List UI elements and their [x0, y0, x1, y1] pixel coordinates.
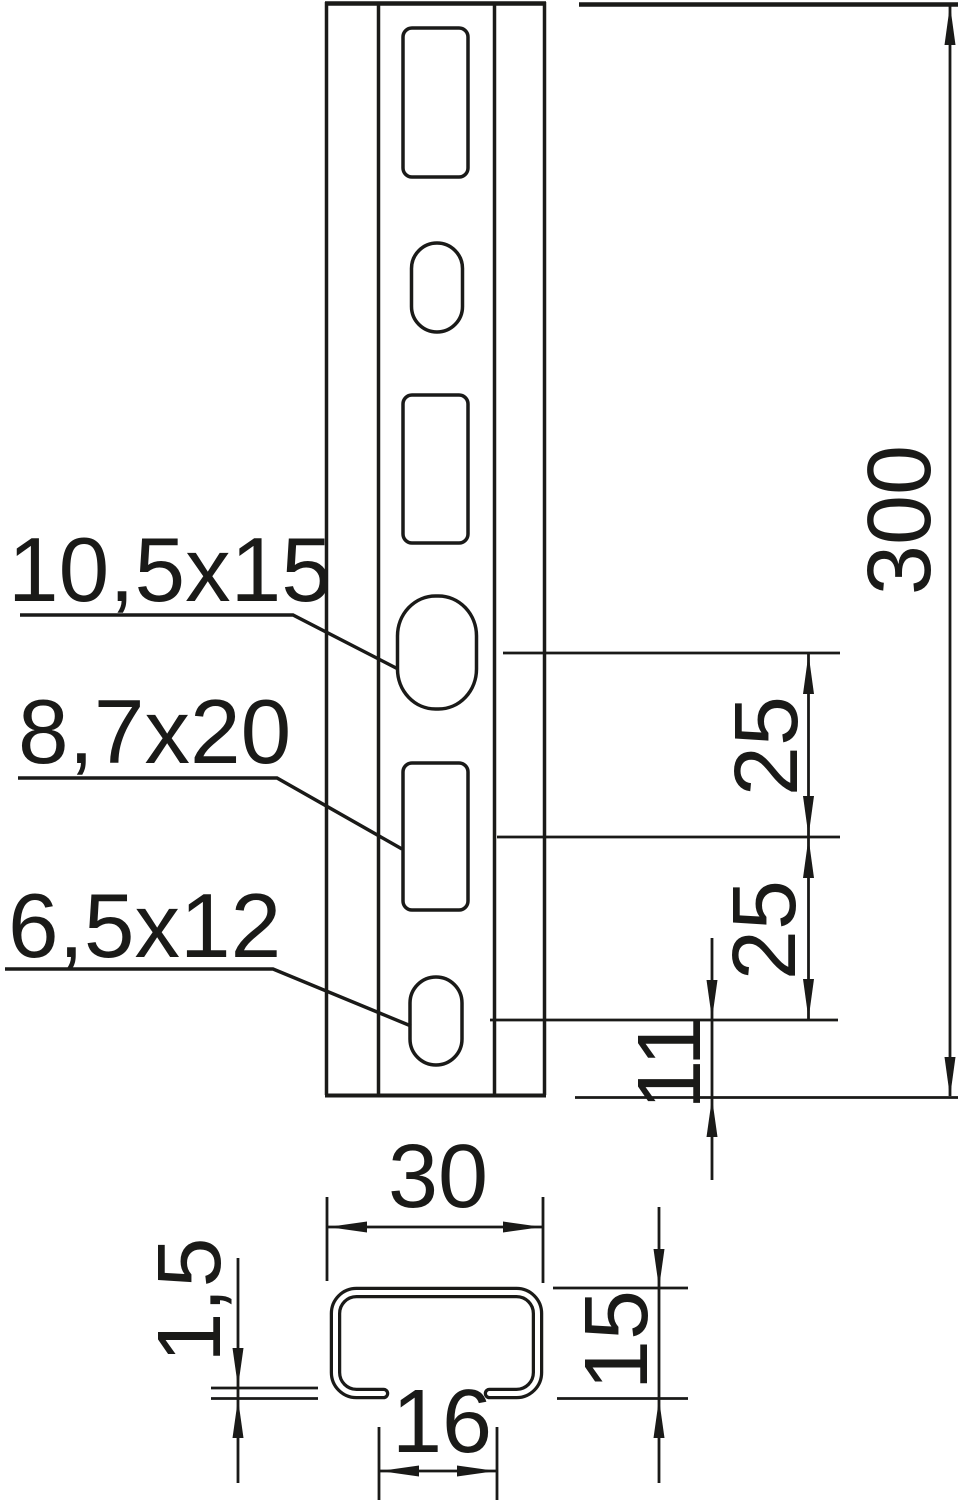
- dimension-profile-width: 30: [327, 1127, 543, 1283]
- arrow-right-icon: [503, 1222, 542, 1233]
- dimension-profile-height: 15: [553, 1207, 688, 1483]
- dim-value-30: 30: [388, 1127, 488, 1227]
- dimension-end-offset: 11: [620, 938, 720, 1180]
- arrow-up-icon: [233, 1399, 244, 1438]
- dim-value-25-lower: 25: [715, 880, 815, 980]
- technical-drawing-page: 10,5x15 8,7x20 6,5x12 300 25 25: [0, 0, 980, 1500]
- hole-small-oval: [410, 977, 462, 1065]
- dimension-upper-spacing: 25: [717, 654, 817, 836]
- rail-side-view: [325, 2, 546, 1096]
- hole-rect-slot-2: [403, 395, 468, 543]
- arrow-up-icon: [803, 838, 814, 878]
- dimension-overall-length: 300: [850, 5, 956, 1097]
- dim-value-16: 16: [392, 1372, 492, 1472]
- hole-size-label: 6,5x12: [8, 876, 281, 977]
- leader-line-rect-slot: [18, 778, 402, 849]
- leader-line-large-oval: [20, 615, 398, 669]
- arrow-down-icon: [654, 1249, 665, 1288]
- arrow-up-icon: [945, 5, 956, 45]
- arrow-up-icon: [803, 654, 814, 694]
- arrow-left-icon: [328, 1222, 367, 1233]
- hole-size-label: 8,7x20: [18, 682, 291, 783]
- hole-oval-slot-1: [412, 243, 463, 332]
- profile-rail-drawing: 10,5x15 8,7x20 6,5x12 300 25 25: [0, 0, 980, 1500]
- arrow-down-icon: [945, 1057, 956, 1097]
- hole-size-label: 10,5x15: [8, 520, 332, 621]
- dim-value-1-5: 1,5: [140, 1237, 240, 1362]
- callout-large-oval: 10,5x15: [8, 520, 398, 669]
- dim-value-15: 15: [567, 1290, 667, 1390]
- arrow-down-icon: [803, 979, 814, 1019]
- hole-large-oval: [398, 596, 477, 709]
- hole-rect-slot-3: [403, 763, 468, 910]
- dim-value-300: 300: [850, 445, 950, 595]
- dim-value-25-upper: 25: [717, 696, 817, 796]
- arrow-down-icon: [707, 980, 718, 1019]
- dimension-slot-opening: 16: [379, 1372, 497, 1500]
- dimension-lower-spacing: 25: [715, 838, 815, 1019]
- callout-rect-slot: 8,7x20: [18, 682, 402, 849]
- arrow-up-icon: [654, 1399, 665, 1438]
- dimension-wall-thickness: 1,5: [140, 1237, 318, 1483]
- hole-rect-slot-1: [403, 28, 468, 177]
- callout-small-oval: 6,5x12: [5, 876, 411, 1026]
- leader-line-small-oval: [5, 969, 411, 1026]
- dim-value-11: 11: [620, 1016, 720, 1109]
- arrow-down-icon: [803, 796, 814, 836]
